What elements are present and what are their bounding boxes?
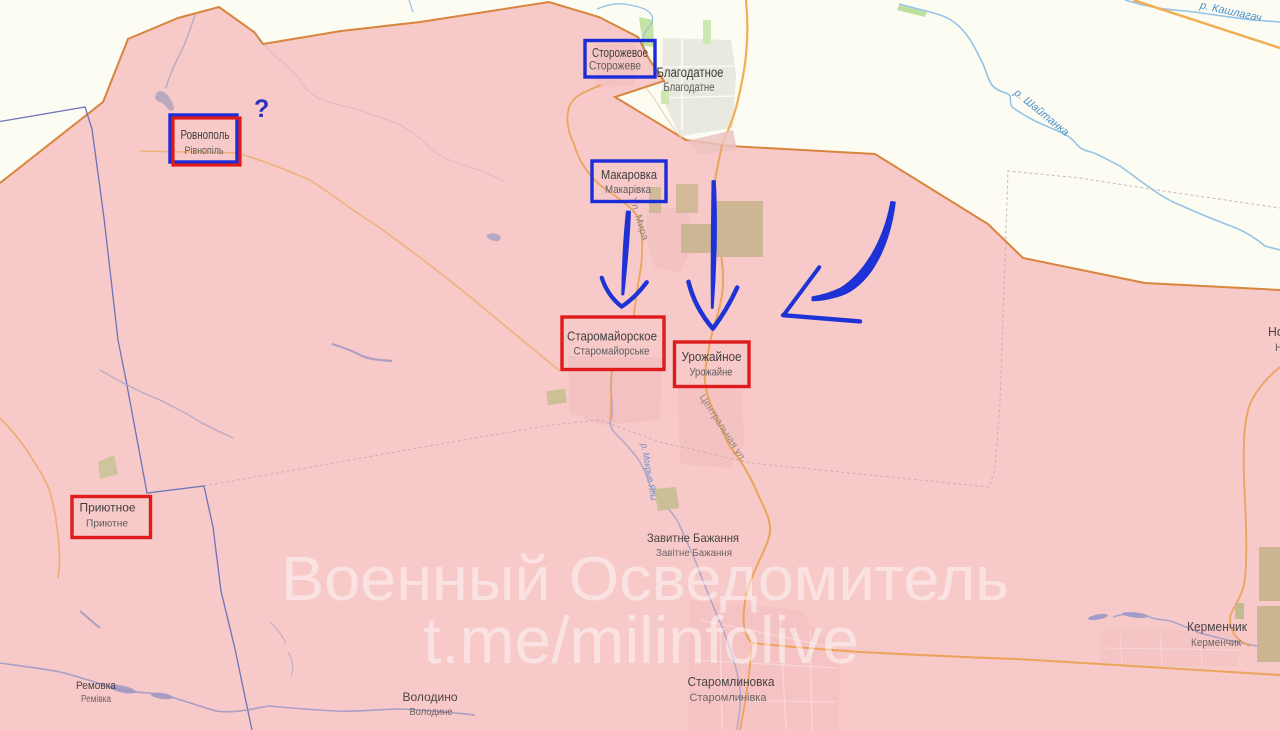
svg-text:Макарівка: Макарівка xyxy=(605,184,652,196)
svg-text:Новоукраїнка: Новоукраїнка xyxy=(1275,342,1280,354)
svg-text:Урожайное: Урожайное xyxy=(682,350,742,364)
svg-text:Ремівка: Ремівка xyxy=(81,694,111,705)
svg-text:Сторожеве: Сторожеве xyxy=(589,61,641,73)
svg-text:Приютне: Приютне xyxy=(86,518,128,530)
svg-text:Макаровка: Макаровка xyxy=(601,168,657,182)
svg-text:Старомайорское: Старомайорское xyxy=(567,329,657,344)
svg-text:Ремовка: Ремовка xyxy=(76,680,117,692)
svg-text:Приютное: Приютное xyxy=(80,501,136,515)
svg-text:Керменчик: Керменчик xyxy=(1191,637,1241,649)
svg-text:Ровнополь: Ровнополь xyxy=(181,128,230,142)
svg-text:Благодатне: Благодатне xyxy=(664,80,715,94)
svg-text:Урожайне: Урожайне xyxy=(690,367,733,379)
svg-text:?: ? xyxy=(254,95,269,123)
svg-text:Керменчик: Керменчик xyxy=(1187,619,1247,634)
svg-text:Благодатное: Благодатное xyxy=(657,65,724,80)
svg-text:t.me/milinfolive: t.me/milinfolive xyxy=(423,603,859,677)
svg-text:Сторожевое: Сторожевое xyxy=(592,46,648,60)
svg-text:Завитне Бажання: Завитне Бажання xyxy=(647,531,739,545)
svg-text:Старомайорське: Старомайорське xyxy=(574,346,650,358)
svg-text:Старомлинівка: Старомлинівка xyxy=(690,692,768,704)
svg-text:Новоукраинка: Новоукраинка xyxy=(1268,325,1280,339)
svg-text:Рівнопіль: Рівнопіль xyxy=(185,145,224,157)
svg-text:Володине: Володине xyxy=(410,706,453,718)
svg-text:Старомлиновка: Старомлиновка xyxy=(688,675,775,689)
svg-text:Володино: Володино xyxy=(403,690,458,704)
